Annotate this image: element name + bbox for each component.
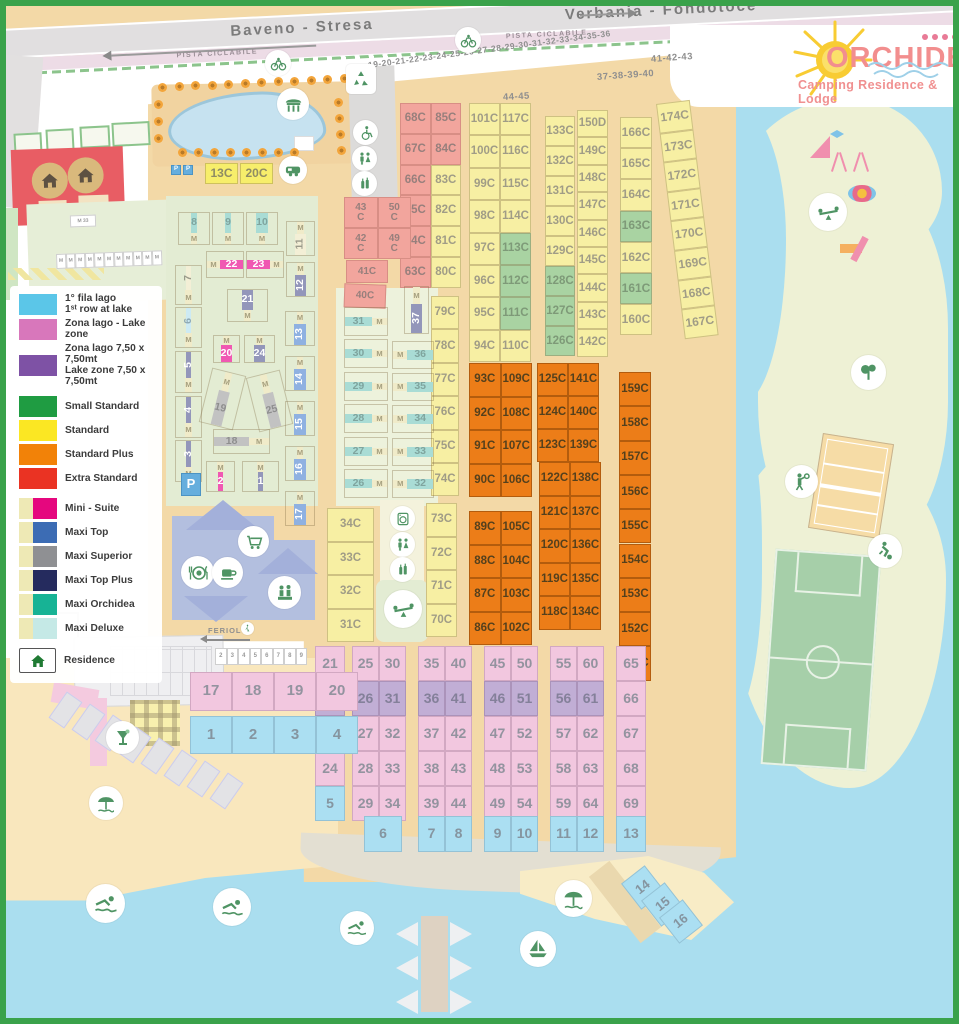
camper-icon — [279, 156, 307, 184]
feriolo-arrow-line — [206, 639, 250, 641]
lot-number: 14 — [294, 369, 306, 390]
legend-panel: 1° fila lago1ˢᵗ row at lakeZona lago - L… — [10, 286, 162, 683]
legend-label: Maxi Superior — [65, 551, 132, 562]
lot-119C: 119C — [539, 563, 570, 597]
lot-1: 1 — [190, 716, 232, 754]
lot-8: 8 — [445, 816, 472, 852]
lot-61: 61 — [577, 681, 604, 716]
lot-2: 2 — [215, 648, 227, 665]
lot-31M: 31M — [344, 307, 388, 336]
lot-53: 53 — [511, 751, 538, 786]
lot-37: 37 — [418, 716, 445, 751]
lot-group-b-blue910: 910 — [484, 816, 538, 852]
penalty-box — [795, 552, 863, 597]
legend-item: Maxi Orchidea — [19, 594, 156, 615]
lot-138C: 138C — [570, 462, 601, 496]
lot-100C: 100C — [469, 135, 500, 167]
pool-umbrella-icon — [334, 98, 343, 107]
lot-52: 52 — [511, 716, 538, 751]
lot-68: 68 — [616, 751, 646, 786]
lot-number: 20 — [221, 345, 233, 362]
cocktail-icon — [106, 721, 139, 754]
lot-73C: 73C — [426, 503, 457, 537]
lot-96C: 96C — [469, 265, 500, 297]
swimmer-icon — [213, 888, 251, 926]
lot-number: 8 — [191, 213, 197, 233]
lot-4: 4 — [316, 716, 358, 754]
m-cell: M — [297, 492, 303, 504]
lot-123C: 123C — [537, 429, 568, 462]
lot-number: 36 — [407, 350, 433, 360]
m-cell: M — [191, 233, 197, 244]
lot-107C: 107C — [501, 430, 533, 464]
lot-161C: 161C — [620, 273, 652, 304]
m-cell: M — [217, 462, 223, 472]
pool-umbrella-icon — [274, 77, 283, 86]
lot-10: 10 — [511, 816, 538, 852]
legend-label: Mini - Suite — [65, 503, 119, 514]
lot-6M: 6M — [175, 307, 202, 348]
lot-31C: 31C — [327, 609, 374, 643]
lot-63C: 63C — [400, 257, 431, 288]
residence-house-icon — [19, 648, 56, 673]
lot-66C: 66C — [400, 165, 431, 196]
lot-88C: 88C — [469, 545, 501, 579]
lot-75C: 75C — [431, 430, 459, 463]
lot-group-orange-d: 89C105C88C104C87C103C86C102C — [469, 511, 532, 645]
lot-number: 9 — [225, 213, 231, 233]
lot-group-yellow-b: 133C132C131C130C129C128C127C126C — [545, 116, 575, 356]
swimmer-icon — [86, 884, 125, 923]
recycle-icon — [346, 64, 376, 94]
lot-9: 9 — [296, 648, 308, 665]
lot-43C: 43 C — [344, 197, 378, 228]
arrow-right-icon — [628, 8, 637, 18]
legend-swatch — [19, 468, 57, 489]
legend-label: Maxi Deluxe — [65, 623, 124, 634]
lot-41C: 41C — [346, 260, 388, 283]
legend-item: Standard Plus — [19, 444, 156, 465]
lot-166C: 166C — [620, 117, 652, 148]
lot-8: 8 — [284, 648, 296, 665]
lot-20M: M20 — [213, 335, 240, 363]
m-cell: M — [393, 448, 407, 455]
lot-168C: 168C — [678, 276, 715, 310]
lot-number: 29 — [345, 382, 372, 392]
lot-group-orange-b: 125C141C124C140C123C139C — [537, 363, 599, 462]
lot-9M: 9M — [212, 212, 244, 245]
lot-67: 67 — [616, 716, 646, 751]
lot-122C: 122C — [539, 462, 570, 496]
lot-93C: 93C — [469, 363, 501, 397]
lot-49C: 49 C — [378, 228, 412, 259]
seesaw-icon — [809, 193, 847, 231]
lot-number: 25 — [262, 392, 282, 428]
pool-umbrella-icon — [323, 75, 332, 84]
lot-127C: 127C — [545, 296, 575, 326]
lot-149C: 149C — [577, 137, 608, 164]
m-cell: M — [393, 351, 407, 358]
lot-42C: 42 C — [344, 228, 378, 259]
lot-174C: 174C — [656, 100, 693, 134]
m-cell: M — [221, 372, 232, 392]
pitch-numbers-label: 44-45 — [503, 91, 530, 103]
lot-121C: 121C — [539, 496, 570, 530]
legend-label: Maxi Top — [65, 527, 108, 538]
m-cell: M — [257, 462, 263, 472]
lot-167C: 167C — [681, 305, 718, 339]
lot-P: P — [171, 165, 181, 175]
pool-umbrella-icon — [290, 77, 299, 86]
legend-swatch — [19, 522, 57, 543]
legend-label: Zona lago 7,50 x 7,50mtLake zone 7,50 x … — [65, 343, 156, 387]
lot-112C: 112C — [500, 265, 531, 297]
toilets-icon — [390, 532, 415, 557]
lot-143C: 143C — [577, 302, 608, 329]
lot-87C: 87C — [469, 578, 501, 612]
lot-145C: 145C — [577, 247, 608, 274]
cafe-icon — [212, 557, 243, 588]
lot-173C: 173C — [660, 129, 697, 163]
pool-umbrella-icon — [208, 81, 217, 90]
lot-68C: 68C — [400, 103, 431, 134]
legend-item: Maxi Deluxe — [19, 618, 156, 639]
field-circle — [805, 644, 841, 680]
lot-50C: 50 C — [378, 197, 412, 228]
lot-M: M — [133, 251, 143, 266]
volleyball-player-icon — [785, 465, 818, 498]
lot-1M: M1 — [242, 461, 279, 492]
lot-105C: 105C — [501, 511, 533, 545]
lot-165C: 165C — [620, 148, 652, 179]
lot-51: 51 — [511, 681, 538, 716]
lot-M: M — [104, 252, 114, 267]
lot-number: 21 — [242, 290, 254, 310]
lot-147C: 147C — [577, 192, 608, 219]
m-cell: M — [259, 233, 265, 244]
lot-124C: 124C — [537, 396, 568, 429]
lot-156C: 156C — [619, 475, 651, 509]
m-cell: M — [372, 415, 387, 422]
lot-group-red-col: 68C85C67C84C66C83C65C82C64C81C63C80C — [400, 103, 461, 288]
lot-28: 28 — [352, 751, 379, 786]
pool-umbrella-icon — [175, 82, 184, 91]
lot-110C: 110C — [500, 330, 531, 362]
lot-9: 9 — [484, 816, 511, 852]
lot-32C: 32C — [327, 575, 374, 609]
seesaw-icon — [384, 590, 422, 628]
pool-umbrella-icon — [158, 83, 167, 92]
lot-M: M — [56, 254, 66, 269]
lot-164C: 164C — [620, 179, 652, 210]
lot-37M: M37 — [404, 286, 429, 334]
legend-label: Maxi Orchidea — [65, 599, 135, 610]
lot-77C: 77C — [431, 363, 459, 396]
pool-umbrella-icon — [224, 80, 233, 89]
bike-icon — [455, 27, 481, 53]
feriolo-arrow-icon — [200, 635, 207, 643]
legend-swatch — [19, 355, 57, 376]
lot-27M: 27M — [344, 437, 388, 466]
legend-swatch — [19, 618, 57, 639]
legend-label: Standard Plus — [65, 449, 134, 460]
lot-66: 66 — [616, 681, 646, 716]
lot-13C: 13C — [205, 163, 238, 184]
lot-63: 63 — [577, 751, 604, 786]
m-cell: M — [297, 312, 303, 324]
lot-126C: 126C — [545, 326, 575, 356]
lot-80C: 80C — [431, 257, 462, 288]
m-cell: M — [413, 287, 419, 304]
m-cell: M — [297, 263, 303, 275]
lot-120C: 120C — [539, 529, 570, 563]
legend-swatch — [19, 594, 57, 615]
m-cell: M — [223, 336, 229, 345]
lot-132C: 132C — [545, 146, 575, 176]
reception-icon — [268, 576, 301, 609]
logo-waves-icon — [868, 62, 956, 78]
lot-26M: 26M — [344, 469, 388, 498]
legend-label: Residence — [64, 655, 115, 666]
lot-number: 5 — [186, 352, 192, 378]
lot-50: 50 — [511, 646, 538, 681]
lot-153C: 153C — [619, 578, 651, 612]
wheelchair-icon — [353, 120, 378, 145]
lot-38: 38 — [418, 751, 445, 786]
lot-number: 18 — [214, 437, 249, 447]
lot-number: 24 — [254, 345, 266, 362]
lot-number: 16 — [294, 459, 306, 480]
lot-139C: 139C — [568, 429, 599, 462]
lot-number: 17 — [294, 504, 306, 525]
lot-48: 48 — [484, 751, 511, 786]
lot-109C: 109C — [501, 363, 533, 397]
legend-item: Maxi Top — [19, 522, 156, 543]
toilets-icon — [352, 146, 377, 171]
lot-group-b-2530: 25302631273228332934 — [352, 646, 406, 821]
m-cell: M — [225, 233, 231, 244]
restaurant-icon — [181, 556, 214, 589]
legend-item: Small Standard — [19, 396, 156, 417]
lot-group-b-1720: 17181920 — [190, 672, 358, 711]
lot-97C: 97C — [469, 233, 500, 265]
lot-91C: 91C — [469, 430, 501, 464]
lodge-house-icon — [31, 162, 68, 199]
lot-P: P — [181, 473, 201, 496]
sailboat-icon — [520, 931, 556, 967]
lot-32M: M32 — [392, 470, 434, 498]
lot-29M: 29M — [344, 372, 388, 401]
m-cell: M — [270, 261, 283, 268]
lot-11: 11 — [550, 816, 577, 852]
lot-99C: 99C — [469, 168, 500, 200]
lot-21M: 21M — [227, 289, 268, 322]
lot-M: M — [85, 253, 95, 268]
lot-78C: 78C — [431, 329, 459, 362]
lot-118C: 118C — [539, 596, 570, 630]
m-cell: M — [297, 357, 303, 369]
lot-144C: 144C — [577, 274, 608, 301]
moored-boat-icon — [396, 922, 418, 946]
lot-group-orange-c: 122C138C121C137C120C136C119C135C118C134C — [539, 462, 601, 630]
lot-137C: 137C — [570, 496, 601, 530]
lot-142C: 142C — [577, 329, 608, 356]
lot-2: 2 — [232, 716, 274, 754]
legend-swatch — [19, 570, 57, 591]
penalty-box — [783, 724, 851, 769]
lot-128C: 128C — [545, 266, 575, 296]
logo-stars — [922, 34, 958, 40]
lot-40: 40 — [445, 646, 472, 681]
lot-7: 7 — [273, 648, 285, 665]
camping-map: Baveno - Stresa Verbania - Fondotoce PIS… — [0, 0, 959, 1024]
lot-83C: 83C — [431, 165, 462, 196]
lot-30M: 30M — [344, 339, 388, 368]
moored-boat-icon — [450, 990, 472, 1014]
lot-74C: 74C — [431, 463, 459, 496]
moored-boat-icon — [450, 956, 472, 980]
lot-number: 1 — [258, 472, 264, 491]
lot-number: 35 — [407, 382, 433, 392]
m-cell: M — [260, 374, 271, 394]
lot-2M: M2 — [206, 461, 235, 492]
m-cell: M — [207, 261, 220, 268]
lot-16M: M16 — [285, 446, 315, 481]
lot-28M: 28M — [344, 404, 388, 433]
lot-79C: 79C — [431, 296, 459, 329]
lot-number: 15 — [294, 414, 306, 435]
legend-item: Mini - Suite — [19, 498, 156, 519]
lot-group-b-5560: 55605661576258635964 — [550, 646, 604, 821]
lot-171C: 171C — [667, 188, 704, 222]
bottles-icon — [352, 171, 377, 196]
lot-number: 33 — [407, 447, 433, 457]
lot-94C: 94C — [469, 330, 500, 362]
lot-135C: 135C — [570, 563, 601, 597]
lot-81C: 81C — [431, 226, 462, 257]
lot-36M: M36 — [392, 341, 434, 369]
pool-umbrella-icon — [274, 148, 283, 157]
lot-M: M — [114, 252, 124, 267]
lot-number: 23 — [247, 260, 270, 270]
lot-57: 57 — [550, 716, 577, 751]
lot-170C: 170C — [670, 217, 707, 251]
lot-136C: 136C — [570, 529, 601, 563]
pool-umbrella-icon — [336, 130, 345, 139]
lot-108C: 108C — [501, 397, 533, 431]
lot-number: 10 — [256, 213, 268, 233]
lot-159C: 159C — [619, 372, 651, 406]
lot-36: 36 — [418, 681, 445, 716]
lot-group-b-65: 6566676869 — [616, 646, 646, 821]
m-cell: M — [256, 336, 262, 345]
m-cell: M — [185, 290, 191, 304]
lot-35: 35 — [418, 646, 445, 681]
lot-41: 41 — [445, 681, 472, 716]
lot-115C: 115C — [500, 168, 531, 200]
lot-47: 47 — [484, 716, 511, 751]
lot-20C: 20C — [240, 163, 273, 184]
lot-number: 32 — [407, 479, 433, 489]
lot-group-b-1-4: 1234 — [190, 716, 358, 754]
legend-swatch — [19, 396, 57, 417]
lot-155C: 155C — [619, 509, 651, 543]
m-cell: M — [185, 333, 191, 347]
lot-number: 34 — [407, 414, 433, 424]
lot-148C: 148C — [577, 165, 608, 192]
lot-158C: 158C — [619, 406, 651, 440]
lot-number: 37 — [411, 304, 423, 333]
lot-M: M — [66, 253, 76, 268]
lot-172C: 172C — [663, 159, 700, 193]
lot-154C: 154C — [619, 544, 651, 578]
lot-71C: 71C — [426, 570, 457, 604]
bike-icon — [265, 50, 291, 76]
lot-163C: 163C — [620, 211, 652, 242]
lot-20: 20 — [316, 672, 358, 711]
lot-33C: 33C — [327, 542, 374, 576]
lot-number: 31 — [345, 317, 372, 327]
pool-umbrella-icon — [154, 117, 163, 126]
plot-marker — [79, 125, 110, 149]
lot-7: 7 — [418, 816, 445, 852]
lot-M: M — [142, 251, 152, 266]
lot-22M: M22 — [206, 251, 244, 278]
m-cell: M — [393, 415, 407, 422]
m-cell: M — [372, 350, 387, 357]
legend-label: Standard — [65, 425, 109, 436]
cart-icon — [238, 526, 269, 557]
lot-67C: 67C — [400, 134, 431, 165]
lot-60: 60 — [577, 646, 604, 681]
lot-6: 6 — [261, 648, 273, 665]
pool-umbrella-icon — [210, 148, 219, 157]
lot-134C: 134C — [570, 596, 601, 630]
lot-5M: 5M — [175, 351, 202, 393]
arrow-left-icon — [102, 51, 111, 61]
lot-33M: M33 — [392, 438, 434, 466]
pool-umbrella-icon — [194, 148, 203, 157]
pool-umbrella-icon — [307, 76, 316, 85]
lot-group-yellow-h: 34C33C32C31C — [327, 508, 374, 642]
lot-number: 11 — [295, 234, 306, 255]
lot-34M: M34 — [392, 405, 434, 433]
moored-boat-icon — [450, 922, 472, 946]
lot-number: 4 — [186, 397, 192, 423]
lot-114C: 114C — [500, 200, 531, 232]
m-cell: M — [297, 402, 303, 414]
lot-group-b-3540: 35403641374238433944 — [418, 646, 472, 821]
moored-boat-icon — [396, 990, 418, 1014]
lot-group-yellow-f: 79C78C77C76C75C74C — [431, 296, 459, 496]
lot-35M: M35 — [392, 373, 434, 401]
pool-umbrella-icon — [241, 79, 250, 88]
lot-30: 30 — [379, 646, 406, 681]
lot-33: 33 — [379, 751, 406, 786]
pool-umbrella-icon — [154, 100, 163, 109]
pier — [421, 916, 448, 1012]
playground-carousel — [848, 185, 876, 202]
lot-17: 17 — [190, 672, 232, 711]
legend-label: Zona lago - Lake zone — [65, 318, 156, 340]
legend-swatch — [19, 420, 57, 441]
lot-number: 3 — [186, 441, 192, 467]
lot-101C: 101C — [469, 103, 500, 135]
lot-70C: 70C — [426, 604, 457, 638]
m-cell: M — [393, 480, 407, 487]
lot-46: 46 — [484, 681, 511, 716]
lot-72C: 72C — [426, 537, 457, 571]
